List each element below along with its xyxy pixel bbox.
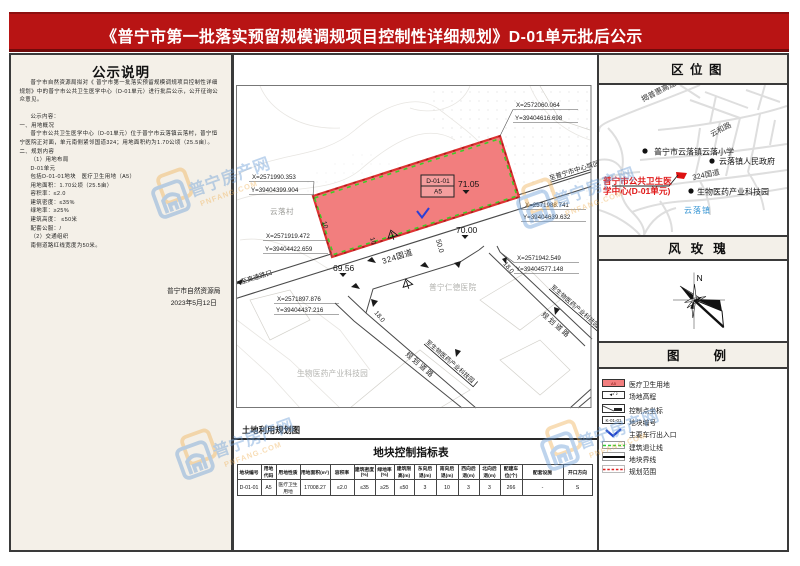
svg-text:Y=39404437.216: Y=39404437.216 [276, 307, 324, 314]
svg-text:生物医药产业科技园: 生物医药产业科技园 [297, 368, 368, 378]
svg-text:70.00: 70.00 [456, 225, 478, 235]
svg-text:Y=39404616.698: Y=39404616.698 [515, 115, 563, 122]
svg-text:X=2572060.064: X=2572060.064 [516, 102, 560, 109]
svg-text:普宁仁德医院: 普宁仁德医院 [429, 282, 476, 292]
svg-text:A5: A5 [434, 189, 442, 196]
svg-text:69.56: 69.56 [333, 263, 355, 273]
svg-text:云落镇人民政府: 云落镇人民政府 [719, 156, 775, 166]
svg-text:生物医药产业科技园: 生物医药产业科技园 [697, 187, 769, 197]
svg-text:X=2571897.876: X=2571897.876 [277, 296, 321, 303]
svg-text:云落村: 云落村 [270, 206, 294, 216]
svg-text:Y=39404577.148: Y=39404577.148 [516, 266, 564, 273]
svg-text:普宁市云落镇云落小学: 普宁市云落镇云落小学 [654, 147, 734, 157]
svg-text:D-01-01: D-01-01 [426, 178, 450, 185]
svg-text:X=2571942.549: X=2571942.549 [517, 255, 561, 262]
svg-text:N: N [697, 273, 703, 283]
svg-text:71.05: 71.05 [458, 179, 480, 189]
svg-text:Y=39404422.659: Y=39404422.659 [265, 246, 313, 253]
svg-text:X=2571919.472: X=2571919.472 [266, 233, 310, 240]
svg-text:云落镇: 云落镇 [684, 205, 711, 215]
